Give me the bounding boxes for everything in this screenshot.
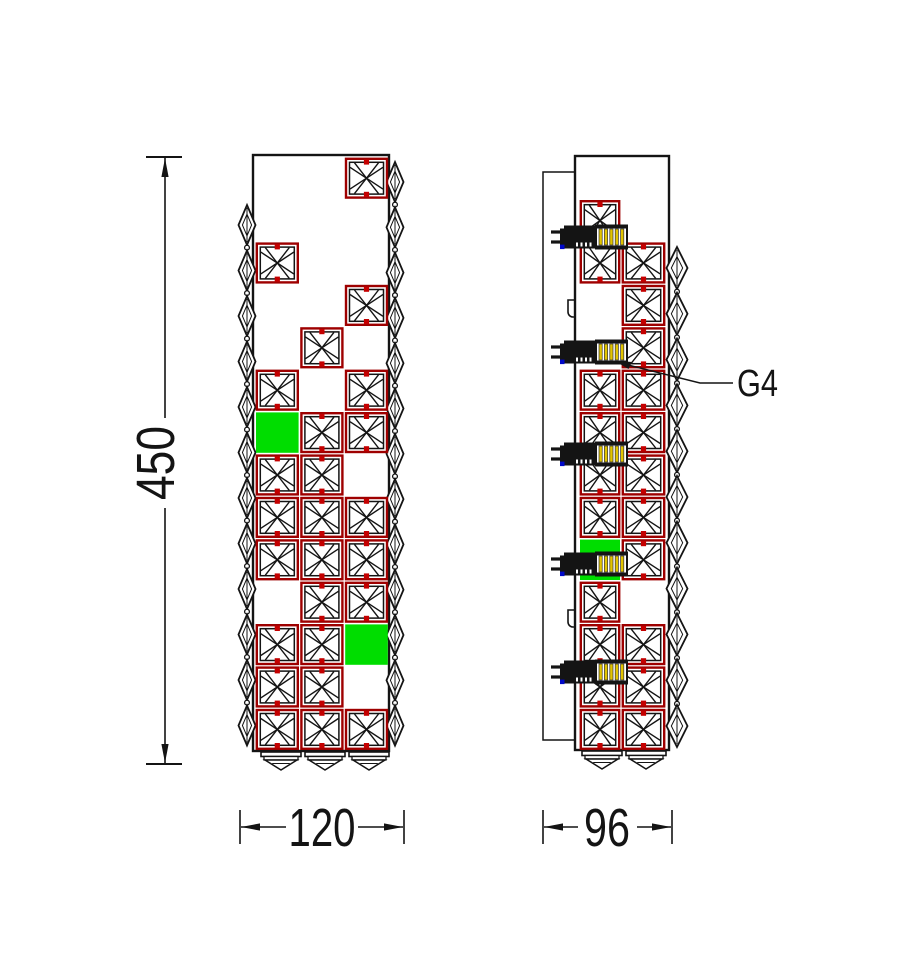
crystal-square bbox=[301, 540, 342, 579]
bulb-filament-stripe bbox=[621, 344, 624, 360]
crystal-square bbox=[257, 625, 298, 664]
wire-blue-dot bbox=[560, 572, 565, 577]
crystal-square bbox=[257, 456, 298, 495]
clip-red-top bbox=[319, 499, 324, 504]
crystal-square bbox=[623, 413, 664, 452]
bulb-filament-stripe bbox=[604, 556, 607, 572]
clip-red-bottom bbox=[364, 531, 369, 536]
crystal-square bbox=[581, 625, 619, 664]
clip-red-bottom bbox=[275, 277, 280, 282]
clip-red-top bbox=[641, 414, 646, 419]
clip-red-bottom bbox=[364, 743, 369, 748]
bulb-filament-stripe bbox=[621, 556, 624, 572]
crystal-square bbox=[257, 540, 298, 579]
clip-red-top bbox=[319, 711, 324, 716]
height-dimension-label: 450 bbox=[126, 426, 186, 500]
crystal-square bbox=[623, 286, 664, 325]
crystal-square bbox=[301, 668, 342, 707]
clip-red-top bbox=[319, 626, 324, 631]
wire-blue-dot bbox=[560, 680, 565, 685]
clip-red-bottom bbox=[597, 616, 602, 621]
bulb-filament-stripe bbox=[621, 446, 624, 462]
clip-red-bottom bbox=[641, 701, 646, 706]
height-dimension-text: 450 bbox=[126, 426, 186, 500]
clip-red-bottom bbox=[319, 573, 324, 578]
clip-red-bottom bbox=[597, 404, 602, 409]
bulb-filament-stripe bbox=[604, 344, 607, 360]
crystal-square bbox=[623, 371, 664, 410]
front-width-dimension-text: 120 bbox=[289, 798, 356, 858]
bulb-filament-stripe bbox=[599, 664, 602, 680]
bulb-filament-stripe bbox=[610, 446, 613, 462]
wire-prong bbox=[551, 675, 561, 678]
clip-red-top bbox=[641, 541, 646, 546]
wire-prong bbox=[551, 345, 561, 348]
wire-blue-dot bbox=[560, 245, 565, 250]
bulb-filament-stripe bbox=[604, 664, 607, 680]
clip-red-bottom bbox=[641, 573, 646, 578]
bulb-filament-stripe bbox=[615, 664, 618, 680]
clip-red-top bbox=[597, 371, 602, 376]
clip-red-top bbox=[597, 583, 602, 588]
arrowhead-up bbox=[161, 158, 168, 177]
clip-red-bottom bbox=[641, 531, 646, 536]
clip-red-top bbox=[597, 414, 602, 419]
wire-prong bbox=[551, 447, 561, 450]
clip-red-bottom bbox=[275, 489, 280, 494]
crystal-square bbox=[623, 540, 664, 579]
clip-red-bottom bbox=[364, 319, 369, 324]
clip-red-top bbox=[641, 668, 646, 673]
clip-red-bottom bbox=[364, 616, 369, 621]
clip-red-bottom bbox=[597, 701, 602, 706]
clip-red-top bbox=[641, 371, 646, 376]
bulb-filament-stripe bbox=[610, 556, 613, 572]
crystal-square bbox=[346, 286, 387, 325]
crystal-square bbox=[623, 498, 664, 537]
clip-red-bottom bbox=[641, 277, 646, 282]
wire-prong bbox=[551, 665, 561, 668]
clip-red-top bbox=[275, 499, 280, 504]
wire-prong bbox=[551, 355, 561, 358]
arrowhead-right bbox=[384, 823, 403, 830]
bulb-filament-stripe bbox=[610, 229, 613, 245]
crystal-square bbox=[346, 371, 387, 410]
clip-red-top bbox=[641, 626, 646, 631]
crystal-square bbox=[623, 456, 664, 495]
drawing-svg: 450 120 96 G4 bbox=[0, 0, 922, 970]
bulb-filament-stripe bbox=[615, 344, 618, 360]
green-crystal-square bbox=[345, 624, 388, 664]
wire-blue-dot bbox=[560, 462, 565, 467]
bulb-filament-stripe bbox=[599, 229, 602, 245]
clip-red-top bbox=[597, 202, 602, 207]
bulb-filament-stripe bbox=[599, 446, 602, 462]
crystal-square bbox=[301, 498, 342, 537]
clip-red-bottom bbox=[641, 319, 646, 324]
wire-prong bbox=[551, 230, 561, 233]
wire-prong bbox=[551, 557, 561, 560]
crystal-square bbox=[346, 710, 387, 749]
bulb-filament-stripe bbox=[610, 344, 613, 360]
clip-red-bottom bbox=[364, 404, 369, 409]
crystal-square bbox=[623, 244, 664, 283]
crystal-square bbox=[301, 625, 342, 664]
crystal-square bbox=[257, 244, 298, 283]
bulb-filament-stripe bbox=[604, 229, 607, 245]
fringe-crystal bbox=[261, 752, 301, 770]
wire-prong bbox=[551, 457, 561, 460]
clip-red-top bbox=[597, 711, 602, 716]
clip-red-top bbox=[319, 414, 324, 419]
clip-red-top bbox=[275, 668, 280, 673]
front-view bbox=[239, 155, 404, 770]
crystal-square bbox=[581, 371, 619, 410]
crystal-square bbox=[257, 498, 298, 537]
clip-red-top bbox=[275, 626, 280, 631]
clip-red-top bbox=[275, 541, 280, 546]
crystal-square bbox=[623, 710, 664, 749]
side-width-dimension-text: 96 bbox=[584, 798, 630, 858]
bulb-filament-stripe bbox=[610, 664, 613, 680]
clip-red-bottom bbox=[641, 404, 646, 409]
bulb-filament-stripe bbox=[621, 664, 624, 680]
clip-red-bottom bbox=[319, 616, 324, 621]
clip-red-top bbox=[364, 583, 369, 588]
clip-red-top bbox=[364, 371, 369, 376]
clip-red-bottom bbox=[597, 743, 602, 748]
clip-red-top bbox=[597, 499, 602, 504]
crystal-square bbox=[581, 710, 619, 749]
clip-red-bottom bbox=[641, 743, 646, 748]
wire-blue-dot bbox=[560, 360, 565, 365]
arrowhead-left bbox=[241, 823, 260, 830]
clip-red-bottom bbox=[597, 277, 602, 282]
crystal-square bbox=[581, 583, 619, 622]
clip-red-top bbox=[364, 414, 369, 419]
crystal-square bbox=[257, 371, 298, 410]
bulb-filament-stripe bbox=[621, 229, 624, 245]
bulb-filament-stripe bbox=[599, 556, 602, 572]
clip-red-bottom bbox=[275, 404, 280, 409]
clip-red-top bbox=[641, 456, 646, 461]
bulb-filament-stripe bbox=[615, 446, 618, 462]
green-crystal-square bbox=[256, 412, 299, 452]
clip-red-top bbox=[641, 329, 646, 334]
crystal-square bbox=[346, 540, 387, 579]
clip-red-bottom bbox=[319, 361, 324, 366]
clip-red-bottom bbox=[364, 573, 369, 578]
cad-drawing-canvas: 450 120 96 G4 bbox=[0, 0, 922, 970]
clip-red-bottom bbox=[275, 743, 280, 748]
arrowhead-left bbox=[544, 823, 563, 830]
wire-prong bbox=[551, 567, 561, 570]
clip-red-top bbox=[319, 668, 324, 673]
clip-red-bottom bbox=[641, 489, 646, 494]
wire-prong bbox=[551, 240, 561, 243]
clip-red-bottom bbox=[319, 701, 324, 706]
crystal-square bbox=[301, 583, 342, 622]
clip-red-top bbox=[641, 287, 646, 292]
crystal-square bbox=[346, 159, 387, 198]
clip-red-bottom bbox=[641, 658, 646, 663]
crystal-square bbox=[346, 583, 387, 622]
clip-red-top bbox=[275, 371, 280, 376]
clip-red-top bbox=[275, 711, 280, 716]
clip-red-top bbox=[641, 244, 646, 249]
crystal-square bbox=[301, 413, 342, 452]
clip-red-top bbox=[364, 499, 369, 504]
clip-red-top bbox=[319, 329, 324, 334]
clip-red-bottom bbox=[275, 701, 280, 706]
clip-red-top bbox=[319, 583, 324, 588]
clip-red-bottom bbox=[275, 531, 280, 536]
clip-red-bottom bbox=[275, 658, 280, 663]
crystal-square bbox=[581, 498, 619, 537]
clip-red-bottom bbox=[319, 743, 324, 748]
clip-red-bottom bbox=[641, 361, 646, 366]
clip-red-bottom bbox=[597, 531, 602, 536]
clip-red-top bbox=[319, 456, 324, 461]
clip-red-top bbox=[275, 244, 280, 249]
clip-red-top bbox=[364, 159, 369, 164]
crystal-square bbox=[346, 413, 387, 452]
crystal-square bbox=[301, 328, 342, 367]
crystal-square bbox=[301, 456, 342, 495]
fringe-crystal bbox=[626, 751, 666, 769]
crystal-square bbox=[301, 710, 342, 749]
fringe-crystal bbox=[582, 751, 622, 769]
crystal-square bbox=[623, 625, 664, 664]
clip-red-bottom bbox=[641, 446, 646, 451]
clip-red-bottom bbox=[364, 192, 369, 197]
side-view bbox=[543, 156, 688, 769]
clip-red-bottom bbox=[319, 446, 324, 451]
clip-red-bottom bbox=[275, 573, 280, 578]
crystal-square bbox=[623, 328, 664, 367]
lamp-type-callout-text: G4 bbox=[737, 363, 778, 405]
crystal-square bbox=[257, 710, 298, 749]
bulb-filament-stripe bbox=[599, 344, 602, 360]
clip-red-top bbox=[597, 626, 602, 631]
bulb-filament-stripe bbox=[604, 446, 607, 462]
clip-red-top bbox=[641, 711, 646, 716]
clip-red-bottom bbox=[364, 446, 369, 451]
clip-red-top bbox=[364, 541, 369, 546]
clip-red-top bbox=[364, 287, 369, 292]
clip-red-bottom bbox=[319, 489, 324, 494]
bulb-filament-stripe bbox=[615, 229, 618, 245]
clip-red-top bbox=[641, 499, 646, 504]
clip-red-bottom bbox=[319, 531, 324, 536]
bulb-filament-stripe bbox=[615, 556, 618, 572]
arrowhead-right bbox=[652, 823, 671, 830]
clip-red-top bbox=[364, 711, 369, 716]
arrowhead-down bbox=[161, 744, 168, 763]
crystal-square bbox=[257, 668, 298, 707]
clip-red-top bbox=[275, 456, 280, 461]
fringe-crystal bbox=[305, 752, 345, 770]
fringe-crystal bbox=[349, 752, 389, 770]
clip-red-bottom bbox=[319, 658, 324, 663]
crystal-square bbox=[346, 498, 387, 537]
clip-red-top bbox=[319, 541, 324, 546]
crystal-square bbox=[623, 668, 664, 707]
clip-red-bottom bbox=[597, 489, 602, 494]
